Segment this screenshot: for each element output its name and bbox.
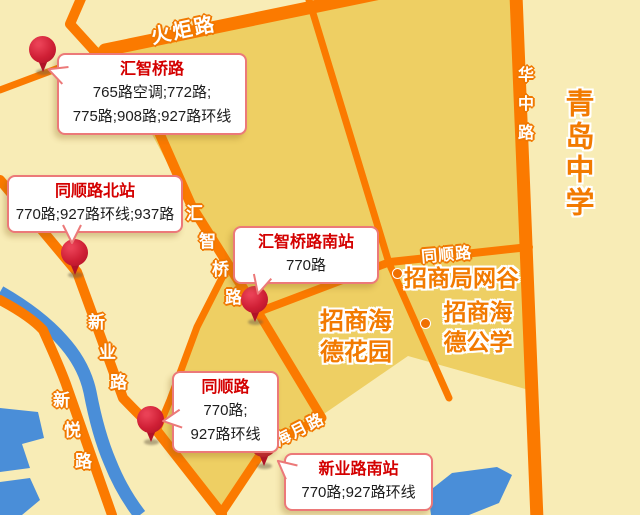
stop-name: 汇智桥路南站 (241, 232, 371, 254)
stop-lines: 765路空调;772路; (65, 81, 239, 105)
stop-name: 同顺路 (180, 377, 271, 399)
stop-lines: 775路;908路;927路环线 (65, 105, 239, 129)
poi-label-wanggu: 招商局网谷 (404, 259, 519, 293)
poi-label-haide-school: 招商海 德公学 (434, 297, 522, 357)
callout-tail (61, 224, 83, 246)
stop-lines: 770路;927路环线;937路 (15, 203, 175, 227)
poi-label-haide-garden-line2: 德花园 (310, 337, 402, 368)
road-label-huizhiqiao-char4: 路 (225, 283, 242, 308)
stop-callout-xinyelu-south[interactable]: 新业路南站 770路;927路环线 (284, 453, 433, 511)
road-label-xinye-char2: 业 (99, 338, 116, 363)
road-label-huizhiqiao-char1: 汇 (186, 199, 203, 224)
poi-dot-haide-school (420, 318, 431, 329)
poi-label-haide-school-line1: 招商海 (434, 297, 522, 327)
poi-label-haide-school-line2: 德公学 (434, 327, 522, 357)
poi-label-haide-garden-line1: 招商海 (310, 306, 402, 337)
stop-lines: 927路环线 (180, 423, 271, 447)
stop-name: 新业路南站 (292, 459, 425, 481)
stop-name: 汇智桥路 (65, 59, 239, 81)
road-label-xinyue-char2: 悦 (64, 416, 81, 441)
stop-callout-tongshunlu[interactable]: 同顺路 770路; 927路环线 (172, 371, 279, 453)
bus-stop-map[interactable]: 火炬路 华中路 同顺路 海月路 汇 智 桥 路 新 业 路 新 悦 路 青岛中学… (0, 0, 640, 515)
stop-callout-huizhiqiaolu[interactable]: 汇智桥路 765路空调;772路; 775路;908路;927路环线 (57, 53, 247, 135)
road-label-xinye-char1: 新 (88, 308, 105, 333)
stop-name: 同顺路北站 (15, 181, 175, 203)
road-label-huizhiqiao-char3: 桥 (212, 255, 229, 280)
stop-callout-tongshunlu-north[interactable]: 同顺路北站 770路;927路环线;937路 (7, 175, 183, 233)
road-label-huazhong: 华中路 (511, 66, 535, 153)
stop-lines: 770路;927路环线 (292, 481, 425, 505)
stop-lines: 770路; (180, 399, 271, 423)
road-label-xinyue-char3: 路 (75, 447, 92, 472)
road-label-xinyue-char1: 新 (53, 386, 70, 411)
poi-label-haide-garden: 招商海 德花园 (310, 306, 402, 368)
callout-tail (159, 408, 184, 433)
road-label-xinye-char3: 路 (110, 368, 127, 393)
poi-dot-wanggu (392, 268, 403, 279)
road-label-huizhiqiao-char2: 智 (199, 227, 216, 252)
stop-callout-huizhiqiaolu-south[interactable]: 汇智桥路南站 770路 (233, 226, 379, 284)
poi-label-qingdao-school: 青岛中学 (556, 88, 598, 220)
